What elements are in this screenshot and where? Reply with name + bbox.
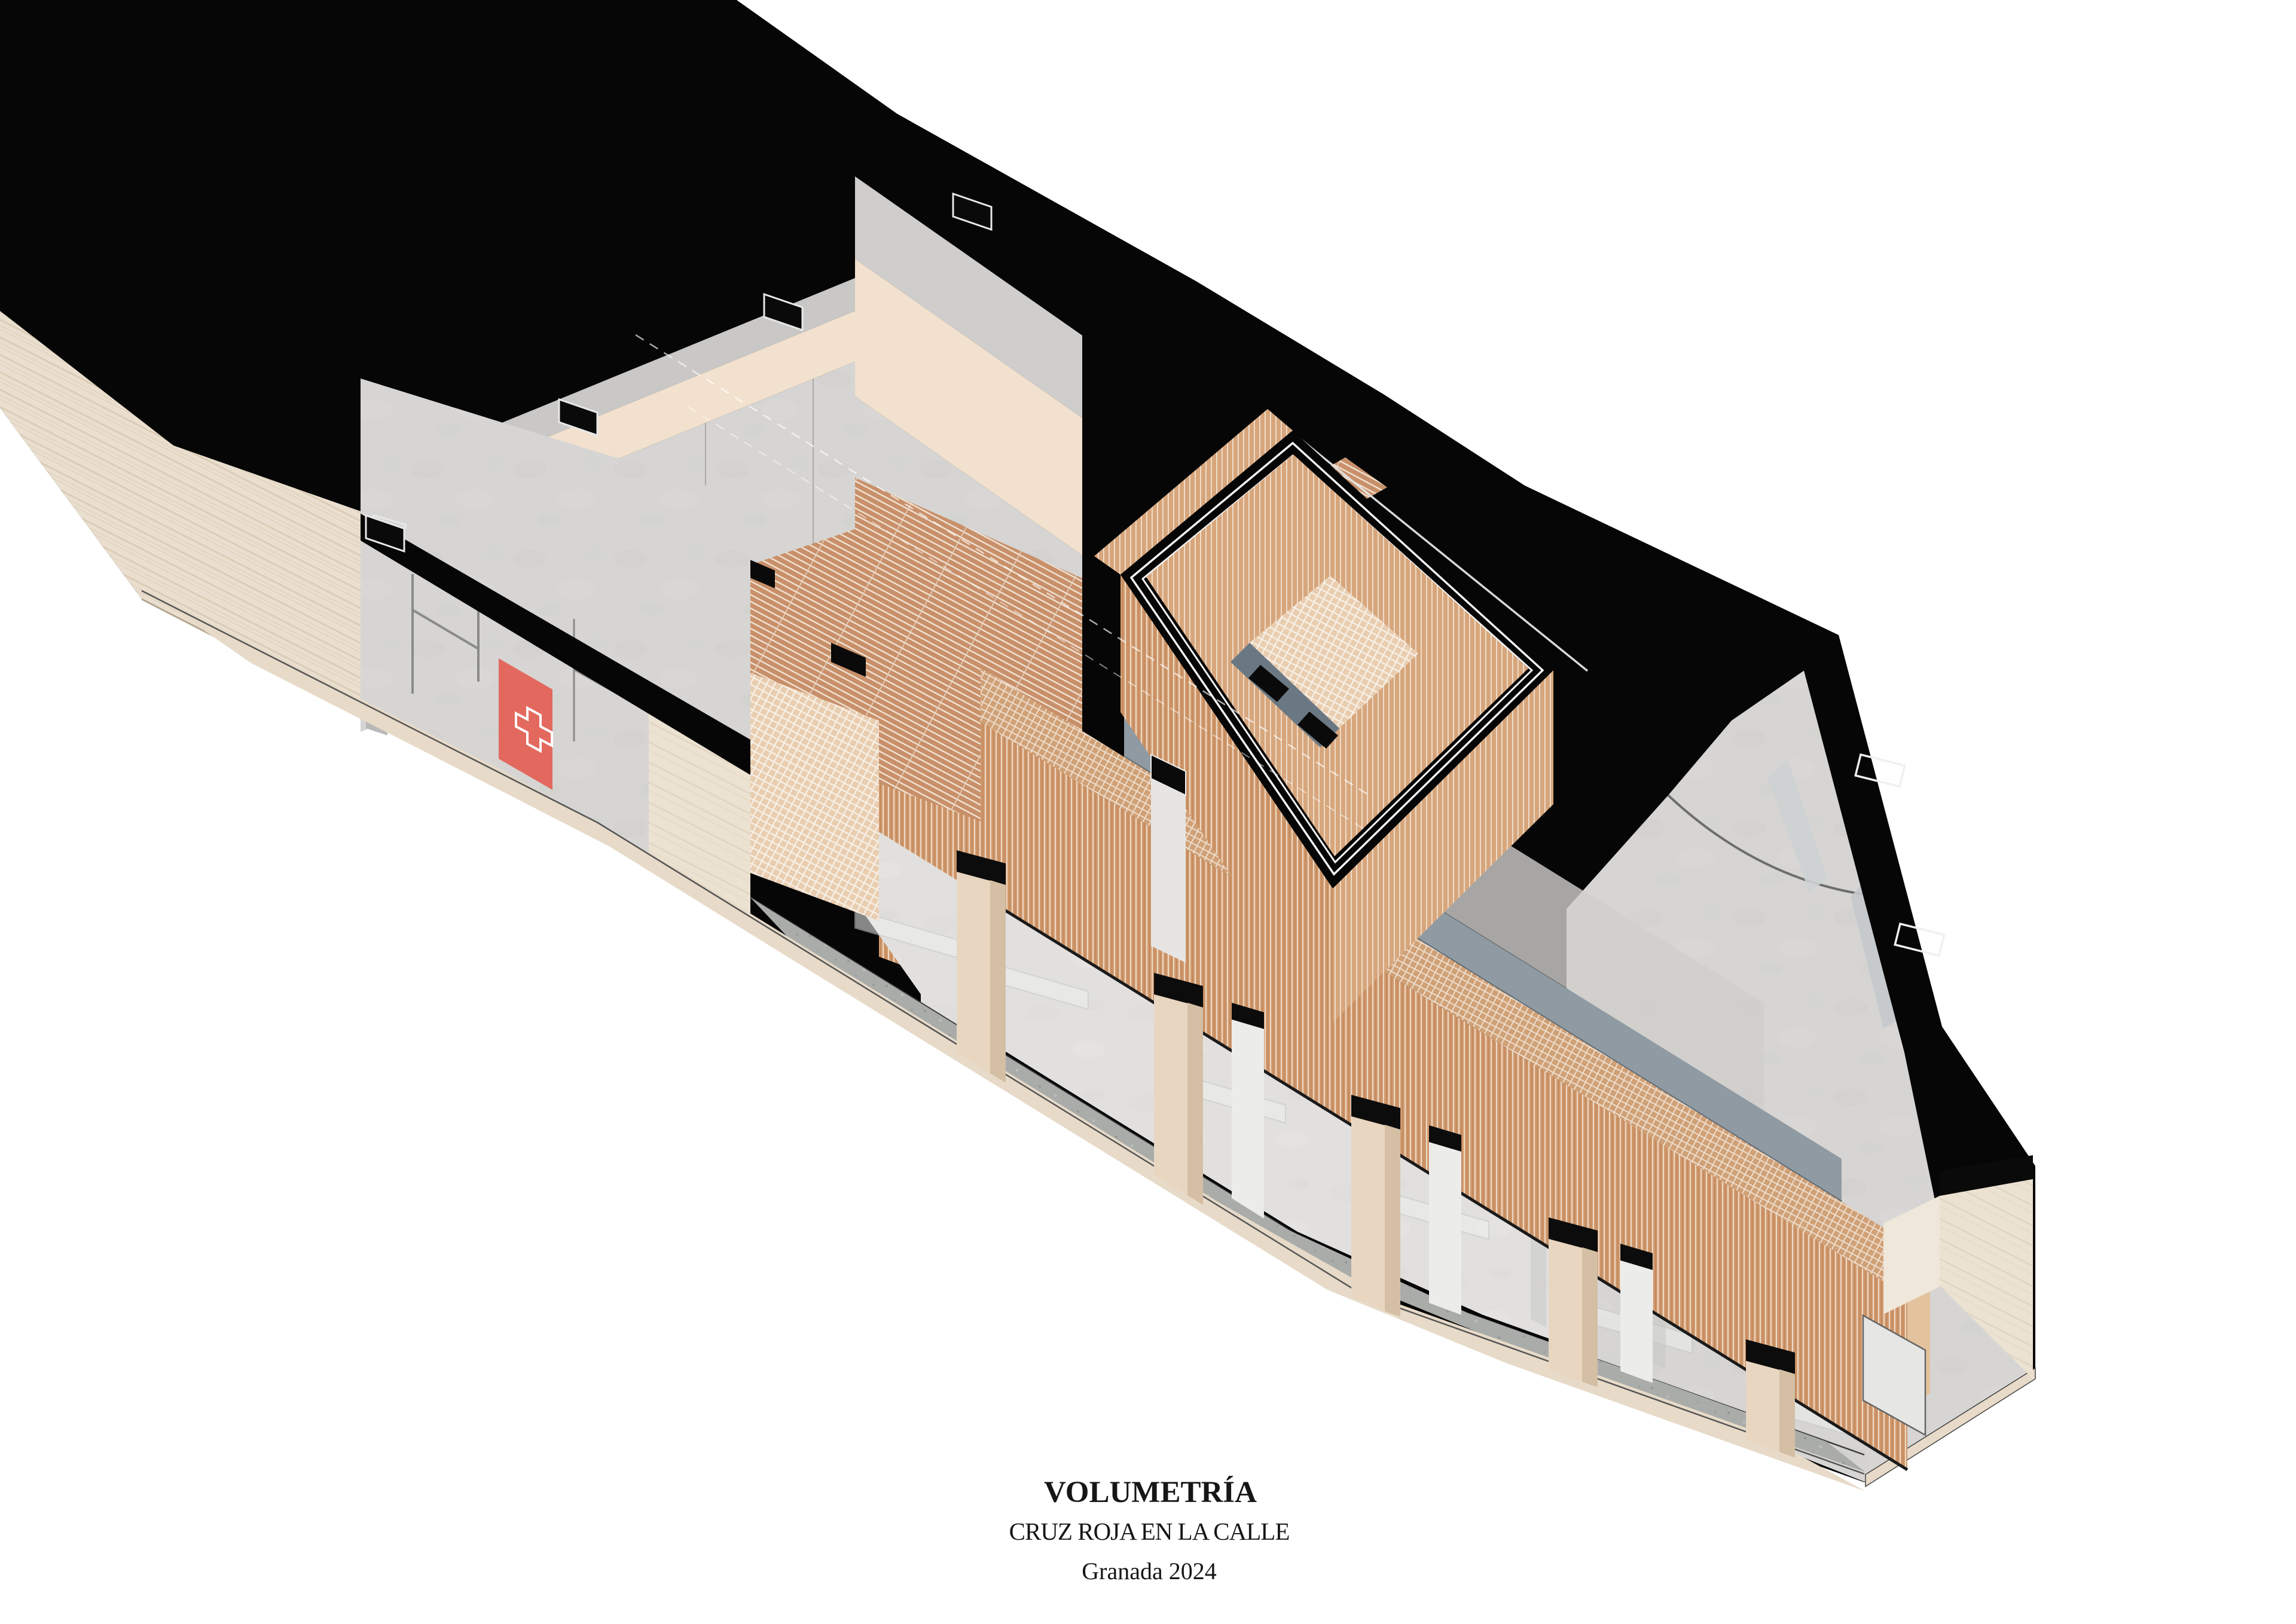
svg-text:VOLUMETRÍA: VOLUMETRÍA bbox=[1044, 1476, 1257, 1509]
svg-text:CRUZ ROJA EN LA CALLE: CRUZ ROJA EN LA CALLE bbox=[1009, 1518, 1290, 1545]
svg-text:Granada 2024: Granada 2024 bbox=[1082, 1558, 1216, 1585]
